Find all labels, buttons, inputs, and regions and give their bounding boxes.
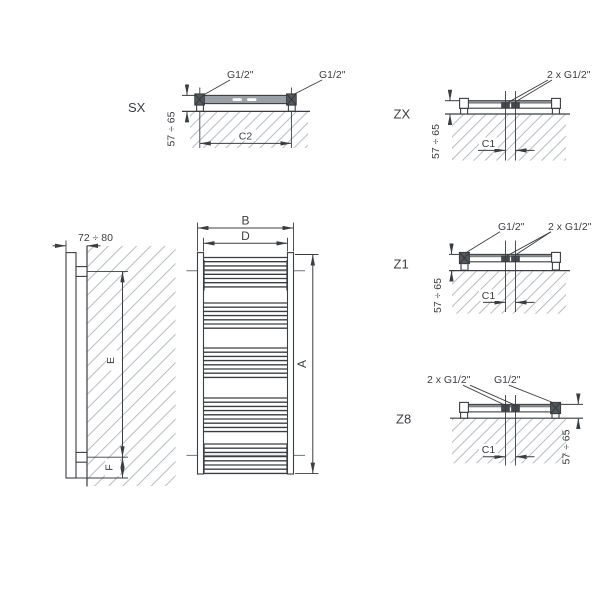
- wall-hatch: [452, 115, 566, 161]
- bar-shading: [461, 255, 559, 257]
- wall-bracket: [552, 414, 559, 419]
- dim-wall-offset: 57 ÷ 65: [430, 92, 450, 159]
- leader-line: [470, 385, 515, 405]
- wall-bracket: [552, 108, 559, 114]
- view-label-zx: ZX: [394, 107, 411, 122]
- view-front: B D A: [187, 214, 319, 475]
- dim-d: D: [204, 229, 288, 252]
- wall-hatch: [452, 419, 566, 464]
- dim-wall-offset: 57 ÷ 65: [561, 396, 579, 464]
- view-label-z1: Z1: [394, 257, 409, 272]
- collector-tube-left: [198, 253, 204, 474]
- radiator-diagram: SX G1/2" G1/2" 57 ÷ 65 C2 ZX: [0, 0, 616, 616]
- leader-line: [516, 232, 551, 255]
- view-z1-top: Z1 G1/2" 2 x G1/2" 57 ÷ 65 C1: [394, 221, 592, 314]
- dim-label-c1: C1: [482, 138, 496, 150]
- end-plug-left: [460, 98, 469, 108]
- view-side: 72 ÷ 80 E F: [53, 232, 176, 487]
- dim-label-c1: C1: [482, 290, 496, 302]
- dim-label-57-65: 57 ÷ 65: [561, 429, 573, 464]
- bar-highlight: [233, 98, 243, 101]
- end-plug-right: [552, 98, 561, 108]
- view-label-sx: SX: [128, 100, 146, 115]
- radiator-bar-top-view: [195, 95, 296, 103]
- wall-bracket: [197, 105, 204, 111]
- connection-label-center: 2 x G1/2": [427, 374, 471, 386]
- dim-label-57-65: 57 ÷ 65: [430, 124, 442, 159]
- view-z8-top: Z8 2 x G1/2" G1/2" 57 ÷ 65 C1: [396, 374, 583, 466]
- leader-line: [293, 80, 323, 95]
- leader-line: [466, 232, 500, 253]
- wall-bracket: [552, 262, 559, 270]
- view-label-z8: Z8: [396, 412, 411, 427]
- technical-drawing-canvas: SX G1/2" G1/2" 57 ÷ 65 C2 ZX: [0, 0, 616, 616]
- connection-label-left: G1/2": [498, 221, 525, 233]
- radiator-rungs: [204, 258, 288, 474]
- leader-line: [463, 385, 505, 405]
- connection-label-center: 2 x G1/2": [548, 221, 592, 233]
- connection-label-left: G1/2": [227, 69, 254, 81]
- end-plug-left: [460, 402, 469, 412]
- view-zx-top: ZX 2 x G1/2" 57 ÷ 65 C1: [394, 69, 591, 161]
- dim-label-f: F: [104, 464, 116, 470]
- connection-label-right: G1/2": [494, 374, 521, 386]
- connection-label-right: G1/2": [319, 69, 346, 81]
- wall-bracket: [288, 105, 295, 111]
- connection-label-center: 2 x G1/2": [547, 69, 591, 81]
- dim-label-a: A: [295, 360, 309, 368]
- leader-line: [204, 80, 231, 95]
- dim-label-b: B: [241, 214, 249, 228]
- leader-line: [516, 80, 552, 102]
- leader-line: [507, 232, 551, 256]
- end-plug-right: [552, 252, 561, 262]
- dim-label-c1: C1: [482, 444, 496, 456]
- wall-bracket: [461, 412, 468, 418]
- dim-a: A: [295, 255, 319, 474]
- collector-tube-right: [288, 253, 294, 474]
- dim-label-c2: C2: [239, 131, 253, 143]
- radiator-side-profile: [66, 253, 76, 478]
- dim-wall-offset: 57 ÷ 65: [432, 246, 452, 313]
- wall-hatch: [452, 271, 566, 314]
- dim-label-57-65: 57 ÷ 65: [432, 278, 444, 313]
- dim-label-72-80: 72 ÷ 80: [78, 232, 113, 244]
- leader-line: [507, 80, 548, 103]
- wall-bracket-bottom: [76, 452, 87, 462]
- dim-label-57-65: 57 ÷ 65: [166, 111, 178, 146]
- wall-bracket: [461, 264, 468, 271]
- wall-hatch: [88, 246, 176, 486]
- view-sx-top: SX G1/2" G1/2" 57 ÷ 65 C2: [128, 69, 346, 148]
- dim-label-e: E: [105, 357, 117, 364]
- bar-shading: [461, 405, 559, 407]
- wall-bracket-top: [76, 267, 87, 277]
- bar-highlight: [247, 98, 257, 101]
- dim-label-d: D: [241, 229, 250, 243]
- dim-f: F: [104, 457, 123, 478]
- wall-bracket: [461, 108, 468, 114]
